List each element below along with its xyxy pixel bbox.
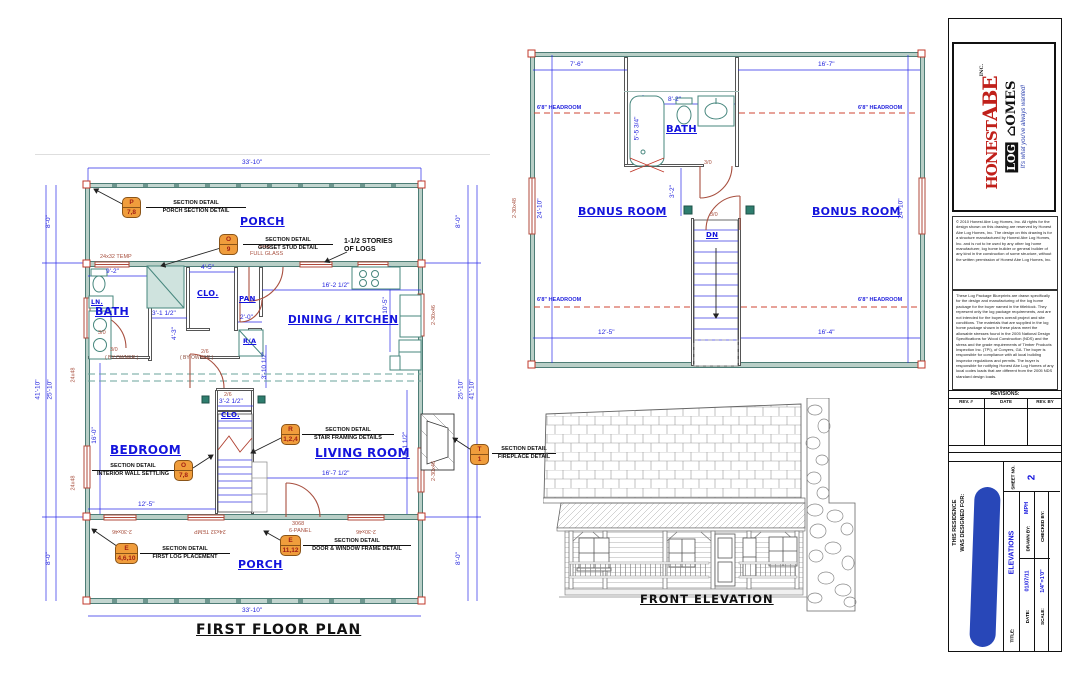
date-value: 01/07/11 (1025, 570, 1031, 591)
sf-stairs (694, 220, 738, 366)
door-tag: 2/6 (201, 349, 209, 355)
dim: 8'-0" (455, 215, 462, 228)
drawn-by-value: MPH (1024, 502, 1030, 514)
dim: 9'-2" (106, 268, 119, 275)
door-tag: 3/0 (704, 160, 712, 166)
main-roof (543, 404, 805, 503)
dim: 33'-10" (242, 607, 262, 614)
revisions-grid (984, 409, 985, 445)
headroom-note: 6'8" HEADROOM (858, 297, 902, 303)
spacer-row (948, 445, 1062, 453)
designed-for-label: THIS RESIDENCE WAS DESIGNED FOR: (950, 468, 970, 578)
dim: 3'-2" (669, 185, 676, 198)
room-label-sf-bath: BATH (666, 124, 697, 135)
section-detail-note: SECTION DETAILPORCH SECTION DETAIL (146, 200, 246, 215)
headroom-note: 6'8" HEADROOM (537, 105, 581, 111)
headroom-note: 6'8" HEADROOM (537, 297, 581, 303)
window-tag: 24x32 TEMP (194, 528, 226, 534)
section-marker-e1112: E11,12 (280, 535, 301, 556)
dim: 3'-1 1/2" (152, 310, 176, 317)
dim: 7'-6" (570, 61, 583, 68)
by-owner-note: ( BY OWNER ) (180, 355, 213, 361)
scale-value: 1/4"=1'0" (1040, 569, 1046, 593)
dim: 12'-5" (598, 329, 615, 336)
dim: 16'-0" (91, 427, 98, 444)
revisions-title: REVISIONS: (948, 390, 1062, 399)
door-tag: 2/6 (224, 392, 232, 398)
section-detail-note: SECTION DETAILSTAIR FRAMING DETAILS (302, 427, 394, 442)
front-elevation-title: FRONT ELEVATION (640, 592, 774, 606)
logo-log-box: LOG (1005, 142, 1018, 173)
dim: 33'-10" (242, 159, 262, 166)
dim: 16'-2 1/2" (322, 282, 349, 289)
dim: 8'-0" (455, 552, 462, 565)
door-tag: 3/0 (98, 330, 106, 336)
window-tag: 2-30x46 (431, 461, 437, 481)
room-label-bedroom: BEDROOM (110, 443, 181, 457)
section-detail-note: SECTION DETAILDOOR & WINDOW FRAME DETAIL (303, 538, 411, 553)
dim: 41'-10" (35, 379, 42, 399)
spacer-row (948, 453, 1062, 462)
chimney (806, 398, 856, 611)
front-elevation-drawing (543, 398, 861, 616)
sheet-label: SHEET NO. (1011, 465, 1016, 489)
label-linen: LN. (91, 299, 103, 306)
room-label-living: LIVING ROOM (315, 446, 410, 460)
note-stories: 1-1/2 STORIESOF LOGS (344, 238, 393, 255)
dim: 5'-5 3/4" (633, 117, 640, 141)
room-label-stair-closet: CLO. (221, 411, 240, 419)
by-owner-note: ( BY OWNER ) (105, 355, 138, 361)
dim: 10'-5" (382, 297, 389, 314)
dim: 4'-5" (201, 264, 214, 271)
dim: 16'-4" (818, 329, 835, 336)
dim: 3'-2 1/2" (219, 398, 243, 405)
room-label-bonus-left: BONUS ROOM (578, 205, 667, 218)
ff-dimension-lines (42, 168, 481, 616)
porch-roof (557, 503, 805, 531)
section-marker-r: R1,2,4 (281, 424, 300, 445)
window-tag: 24x32 TEMP (100, 254, 132, 260)
logo-text: HONEST (983, 121, 1001, 189)
scale-checked-cell: CHECKED BY: 1/4"=1'0" SCALE: (1034, 492, 1049, 652)
door-tag: 3/0 (110, 347, 118, 353)
window-tag: 2-30x46 (112, 528, 132, 534)
linework-layer (0, 0, 1080, 675)
sheet-cell: SHEET NO. 2 (1003, 462, 1060, 492)
headroom-note: 6'8" HEADROOM (858, 105, 902, 111)
room-label-dining-kitchen: DINING / KITCHEN (288, 314, 398, 326)
room-label-porch: PORCH (240, 215, 285, 228)
label-down: DN (706, 231, 718, 239)
dim: 41'-10" (469, 379, 476, 399)
section-marker-o78: O7,8 (174, 460, 193, 481)
dim: 12'-5" (138, 501, 155, 508)
section-detail-note: SECTION DETAILFIRST LOG PLACEMENT (140, 546, 230, 561)
window-tag: 2-30x46 (356, 528, 376, 534)
dim: 24'-10" (537, 198, 544, 218)
door-tag: 3/0 (710, 212, 718, 218)
date-drawn-cell: MPH DRAWN BY: 01/07/11 DATE: (1019, 492, 1034, 652)
disclaimer-text: These Log Package Blueprints are drawn s… (952, 290, 1058, 390)
dim: 16'-7" (818, 61, 835, 68)
section-marker-e46: E4,6,10 (115, 543, 138, 564)
room-label-bath: BATH (95, 305, 129, 318)
dim: 8'-2" (668, 96, 681, 103)
section-marker-t1: T1 (470, 444, 489, 465)
dim: 3'-10 1/2" (261, 352, 268, 379)
loft-overhang-dashes (88, 374, 421, 381)
room-label-closet: CLO. (197, 289, 219, 298)
door-tag: 6-PANEL (289, 528, 312, 534)
window-tag: 24x48 (71, 476, 77, 491)
dim: 8'-0" (45, 215, 52, 228)
window-tag: 2-30x46 (431, 305, 437, 325)
dim: 25'-10" (47, 379, 54, 399)
dim: 24'-10" (898, 198, 905, 218)
revisions-header: REV. # DATE REV. BY (948, 399, 1062, 409)
room-label-pantry: PAN (239, 295, 256, 303)
sheet-number: 2 (1027, 474, 1038, 480)
dim: 25'-10" (458, 379, 465, 399)
section-marker-p: P7,8 (122, 197, 141, 218)
post-markers (202, 206, 754, 403)
section-detail-note: SECTION DETAILGUSSET STUD DETAIL (243, 237, 333, 252)
dim: 2'-0" (240, 314, 253, 321)
dim: 14'-1 1/2" (402, 432, 409, 459)
dim: 8'-0" (45, 552, 52, 565)
window-tag: 2-30x48 (512, 198, 518, 218)
dim: 4'-3" (171, 327, 178, 340)
window-tag: 24x48 (71, 368, 77, 383)
title-cell: ELEVATIONS TITLE: (1003, 492, 1019, 652)
section-marker-o9: O9 (219, 234, 238, 255)
fireplace (421, 414, 454, 470)
label-return-air: R/A (243, 337, 256, 345)
first-floor-plan-title: FIRST FLOOR PLAN (196, 622, 361, 638)
dim: 16'-7 1/2" (322, 470, 349, 477)
logo-tagline: It's what you've always wanted! (1022, 64, 1028, 190)
section-detail-note: SECTION DETAILINTERIOR WALL SETTLING (92, 463, 174, 478)
sheet-title: ELEVATIONS (1009, 530, 1016, 574)
cabin-icon: ⌂ (1004, 126, 1019, 137)
door-tag: 3068 (292, 521, 304, 527)
porch-railing (569, 562, 797, 578)
revisions-grid (1027, 409, 1028, 445)
ff-stairs (218, 414, 267, 512)
blueprint-sheet: PORCH BATH CLO. PAN DINING / KITCHEN BED… (0, 0, 1080, 675)
company-logo: HONESTABEINC. LOG ⌂OMES It's what you've… (952, 42, 1056, 212)
copyright-text: © 2010 Honest Abe Log Homes, Inc. All ri… (952, 216, 1058, 290)
room-label-porch-rear: PORCH (238, 558, 283, 571)
room-label-bonus-right: BONUS ROOM (812, 205, 901, 218)
